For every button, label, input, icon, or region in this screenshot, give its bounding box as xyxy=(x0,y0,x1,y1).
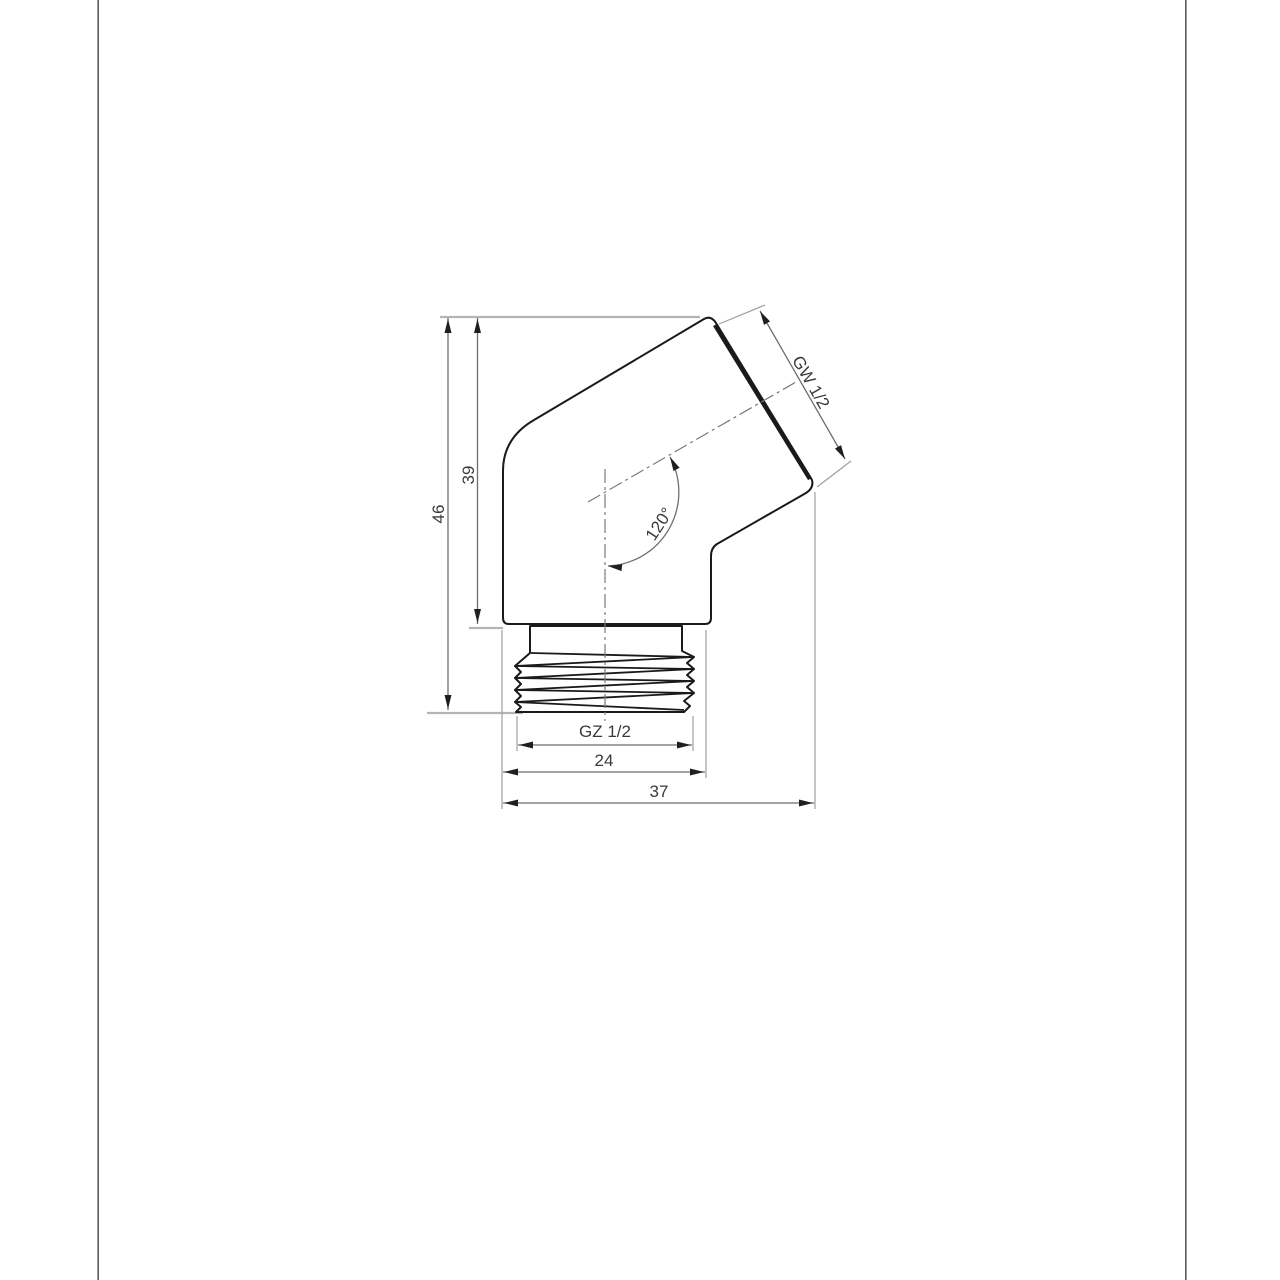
arrow-gz-left xyxy=(519,742,533,749)
arrow-46-top xyxy=(445,319,452,333)
arrow-39-bottom xyxy=(474,609,481,623)
arrow-24-right xyxy=(690,769,704,776)
arrow-24-left xyxy=(504,769,518,776)
arrow-37-right xyxy=(799,800,813,807)
arrow-gw-bottom xyxy=(835,445,848,461)
arrow-gw-top xyxy=(757,309,770,325)
body-outline xyxy=(503,318,812,624)
page: 46 39 GW 1/2 120° GZ 1/2 24 37 xyxy=(0,0,1280,1280)
arrow-39-top xyxy=(474,319,481,333)
label-24: 24 xyxy=(595,751,614,770)
arrow-gz-right xyxy=(677,742,691,749)
arrow-46-bottom xyxy=(445,695,452,709)
label-gw: GW 1/2 xyxy=(788,353,833,412)
ext-gw-upper xyxy=(719,305,765,324)
arrow-37-left xyxy=(504,800,518,807)
label-37: 37 xyxy=(650,782,669,801)
technical-drawing: 46 39 GW 1/2 120° GZ 1/2 24 37 xyxy=(0,0,1280,1280)
ext-gw-lower xyxy=(817,461,851,487)
label-39: 39 xyxy=(459,466,478,485)
label-gz: GZ 1/2 xyxy=(579,722,631,741)
label-46: 46 xyxy=(429,505,448,524)
